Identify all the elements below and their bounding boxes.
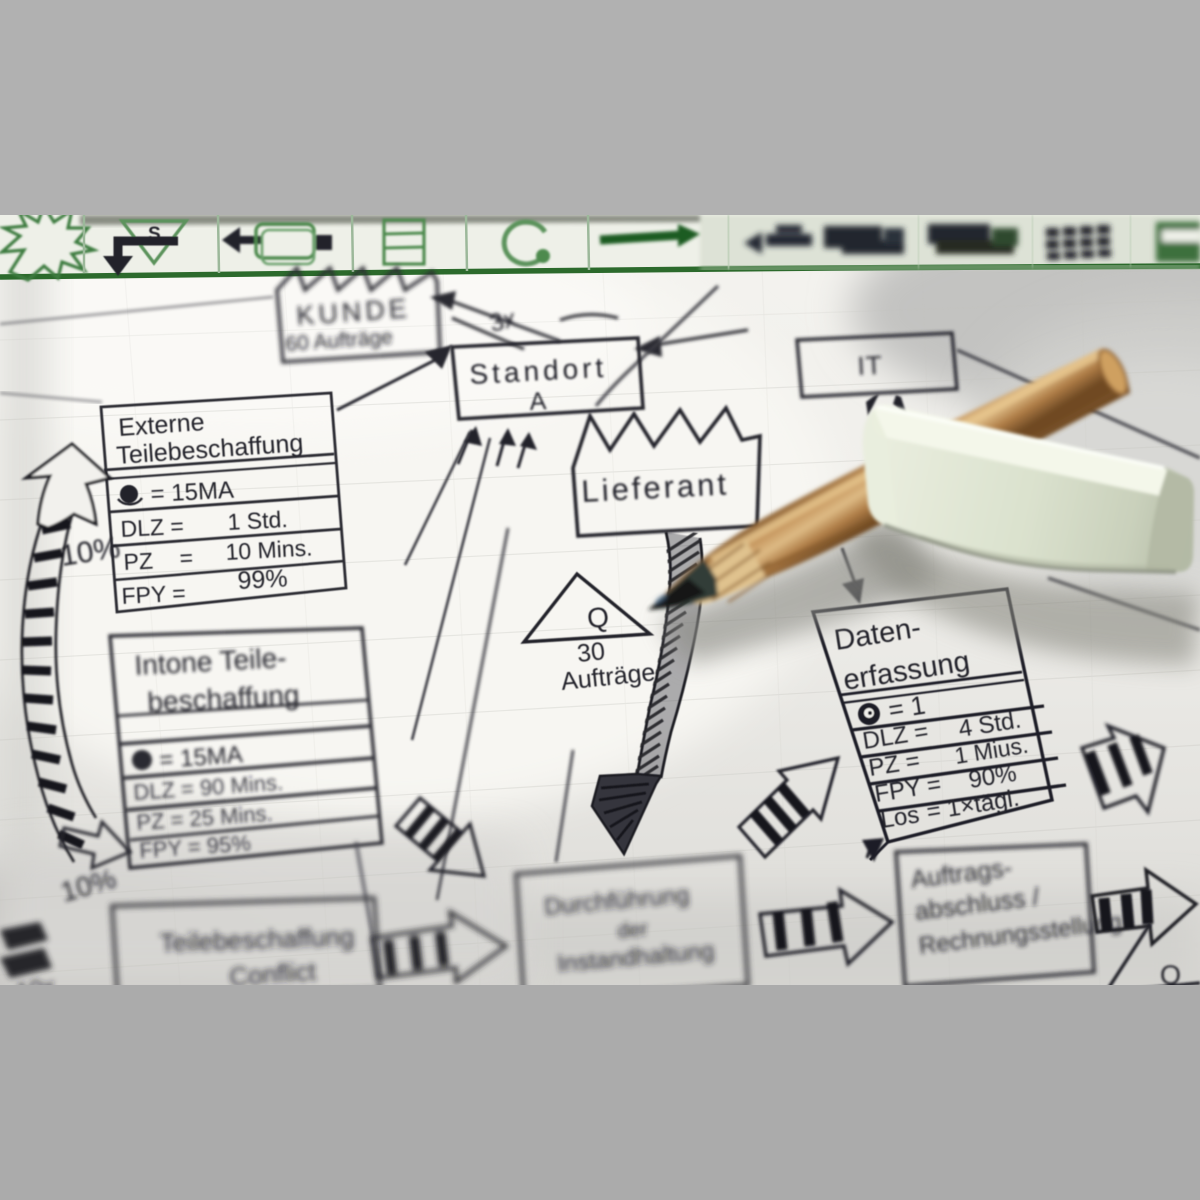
svg-text:IT: IT (857, 350, 884, 381)
svg-text:der: der (616, 917, 648, 943)
svg-text:A: A (529, 387, 547, 416)
svg-text:PZ: PZ (123, 547, 154, 575)
svg-text:99%: 99% (237, 564, 288, 595)
svg-text:DLZ =: DLZ = (120, 513, 185, 542)
svg-text:=: = (179, 544, 194, 571)
svg-text:= 15MA: = 15MA (150, 477, 235, 508)
svg-text:1 Std.: 1 Std. (227, 506, 288, 535)
svg-text:FPY =: FPY = (121, 580, 186, 609)
svg-text:Q: Q (586, 601, 610, 634)
svg-text:10 Mins.: 10 Mins. (225, 534, 313, 565)
